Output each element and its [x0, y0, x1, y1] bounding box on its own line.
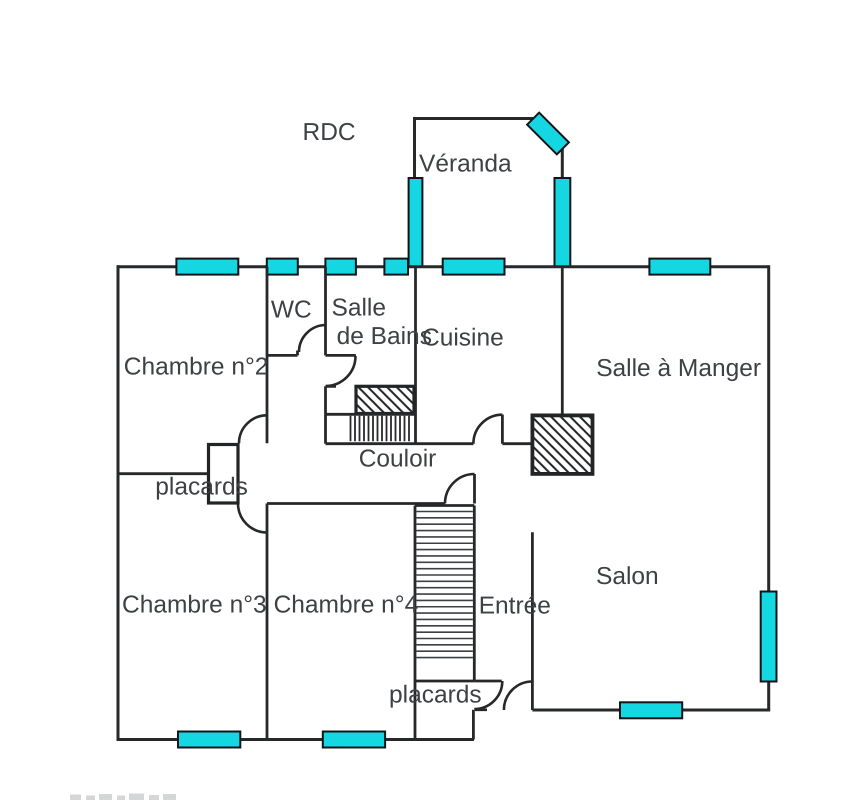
- svg-text:Chambre n°3: Chambre n°3: [122, 592, 267, 619]
- svg-text:Couloir: Couloir: [359, 446, 437, 473]
- svg-text:RDC: RDC: [303, 119, 356, 146]
- svg-text:WC: WC: [271, 297, 312, 324]
- svg-text:Entrée: Entrée: [479, 592, 551, 619]
- svg-text:Salle: Salle: [332, 295, 386, 322]
- svg-text:Salon: Salon: [596, 563, 659, 590]
- svg-text:Chambre n°2: Chambre n°2: [124, 354, 269, 381]
- svg-text:Salle à Manger: Salle à Manger: [596, 355, 761, 382]
- svg-text:placards: placards: [389, 682, 482, 709]
- svg-text:placards: placards: [155, 473, 248, 500]
- svg-text:Véranda: Véranda: [419, 151, 512, 178]
- svg-text:Chambre n°4: Chambre n°4: [274, 592, 419, 619]
- svg-text:de Bains: de Bains: [337, 323, 432, 350]
- svg-text:Cuisine: Cuisine: [422, 324, 504, 351]
